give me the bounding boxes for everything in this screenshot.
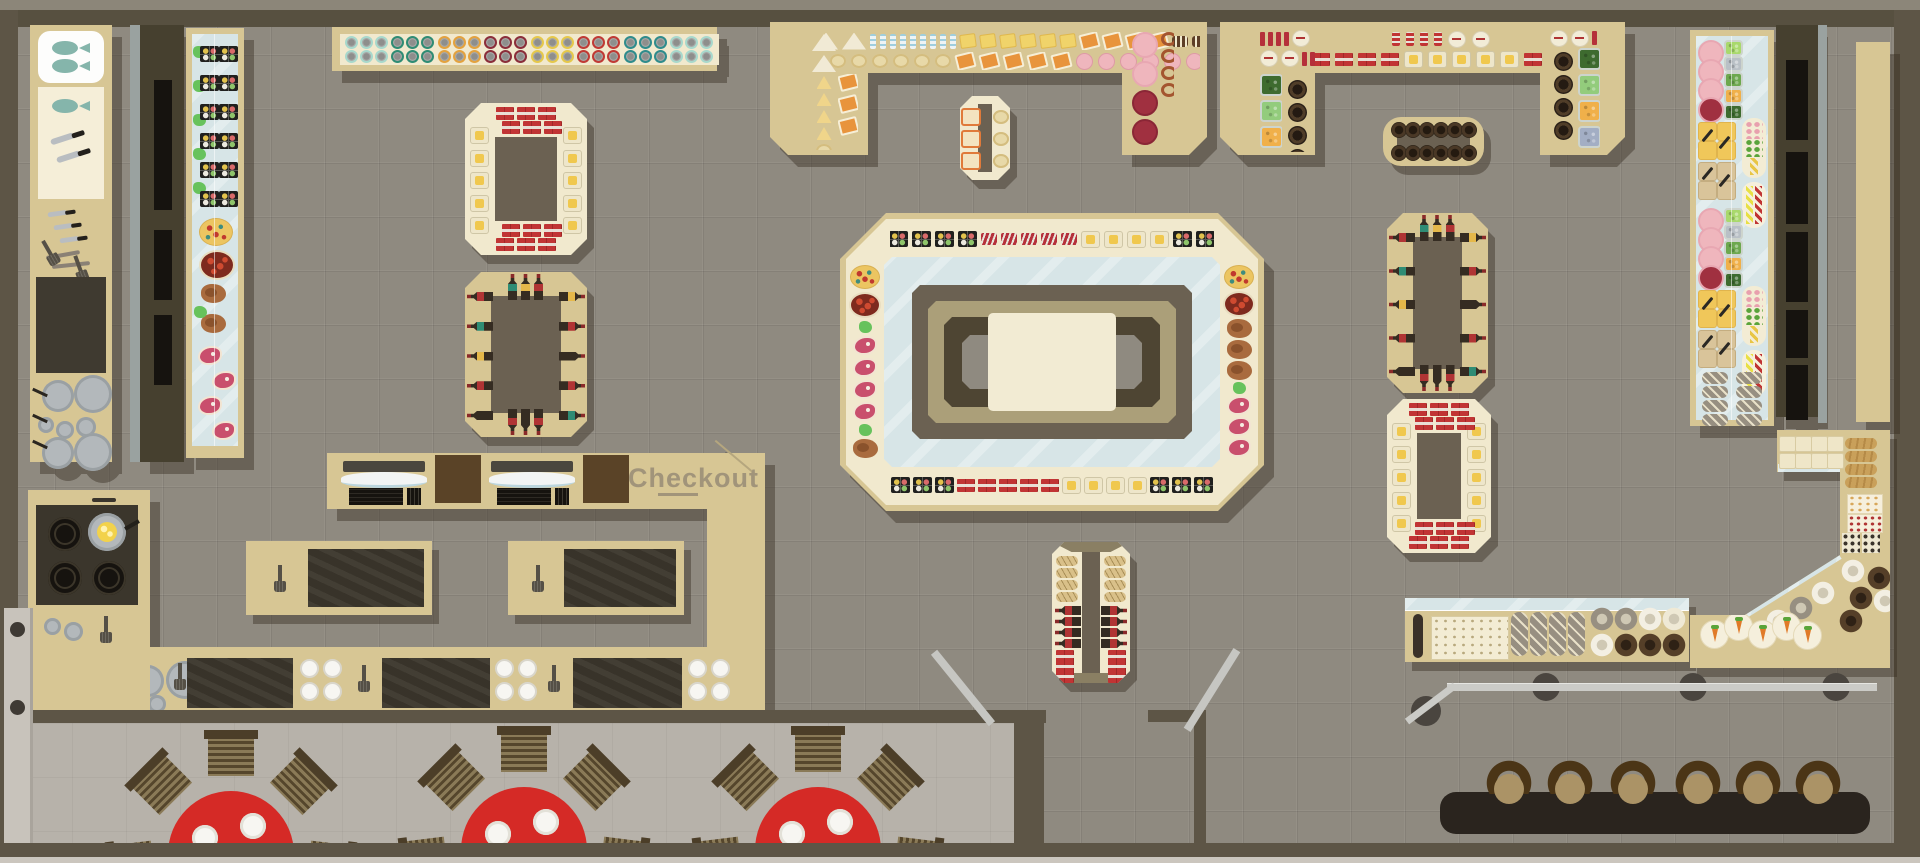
bagging-area — [583, 455, 629, 503]
dessert-glass — [1690, 607, 1745, 615]
tin-group — [345, 36, 389, 63]
tin — [592, 36, 605, 49]
butter-dairy-island-right[interactable] — [1387, 399, 1491, 553]
display-glass — [1696, 36, 1768, 420]
tin — [700, 36, 713, 49]
bowl-brown — [1288, 103, 1307, 122]
item-strip — [1320, 30, 1530, 48]
butter — [1106, 477, 1125, 494]
orange-slab — [1101, 32, 1123, 50]
canpack — [517, 107, 535, 120]
bottle — [1055, 617, 1081, 626]
register-card-slot — [555, 488, 569, 505]
bottle — [559, 381, 585, 390]
bowl-brown — [1288, 126, 1307, 145]
fish-prep-station[interactable] — [30, 25, 112, 462]
wall-bench — [4, 608, 33, 845]
ham-topping — [1745, 289, 1763, 307]
dining-chair[interactable] — [426, 752, 485, 811]
queue-railing — [1447, 683, 1877, 691]
bread-block — [1698, 181, 1717, 200]
leek — [910, 34, 916, 49]
donut — [1661, 606, 1687, 632]
butter — [1392, 423, 1411, 440]
dining-chair[interactable] — [720, 752, 779, 811]
canpack — [1335, 53, 1353, 66]
tin — [654, 50, 667, 63]
sushi — [1194, 477, 1213, 493]
tin — [685, 36, 698, 49]
chips — [817, 110, 832, 123]
tin — [561, 36, 574, 49]
butter — [1150, 231, 1169, 248]
cheese-wedge — [812, 55, 836, 72]
loafH — [1736, 372, 1762, 384]
item-strip — [1550, 28, 1600, 48]
greens — [1233, 382, 1246, 394]
canpack — [1041, 479, 1059, 492]
glass-seam — [1731, 36, 1732, 420]
bread — [1104, 592, 1126, 602]
grill-island-left[interactable] — [246, 541, 432, 615]
butter — [1392, 446, 1411, 463]
tin — [639, 50, 652, 63]
dessert-counter[interactable] — [1690, 430, 1890, 668]
glass-seam — [214, 34, 215, 446]
striped-can — [1434, 32, 1442, 46]
canpack — [1451, 536, 1469, 549]
bread-wine-island[interactable] — [1052, 542, 1130, 683]
frying-pan — [64, 622, 83, 641]
stool-seat[interactable] — [1618, 774, 1648, 804]
dark-round — [1132, 90, 1158, 116]
bottleV — [521, 274, 530, 300]
donut — [1838, 608, 1864, 634]
pastry-sq — [1779, 436, 1796, 452]
cheese-slice — [999, 33, 1017, 49]
loaf — [1530, 612, 1547, 656]
frying-pan — [44, 618, 61, 635]
tin — [514, 50, 527, 63]
sushi — [912, 231, 931, 247]
bottleV — [1420, 215, 1429, 241]
bottle — [467, 381, 493, 390]
fish-cutting-panel — [38, 87, 104, 199]
entrance-gate-right[interactable] — [1184, 648, 1241, 732]
canpack — [1056, 670, 1074, 683]
curly — [1161, 83, 1174, 97]
canpack — [502, 224, 520, 237]
sushi — [200, 162, 219, 178]
bottle — [467, 292, 493, 301]
tin — [592, 50, 605, 63]
tomato — [1223, 291, 1255, 317]
item-strip — [1578, 48, 1600, 152]
mozzarella — [1550, 30, 1568, 47]
chicken — [1227, 361, 1252, 380]
tin — [421, 50, 434, 63]
wine-island-left[interactable] — [465, 272, 587, 437]
croissant — [1845, 477, 1877, 488]
curly — [1161, 32, 1174, 46]
bottleV — [1420, 365, 1429, 391]
dining-table-group — [394, 720, 654, 863]
wine-island-right[interactable] — [1387, 213, 1488, 393]
butter — [1467, 469, 1486, 486]
register-card-slot — [407, 488, 421, 505]
tin — [360, 50, 373, 63]
bottleV — [534, 274, 543, 300]
plate — [495, 659, 514, 678]
sandwich-display-case[interactable] — [1690, 30, 1774, 426]
dining-chair[interactable] — [133, 756, 192, 815]
canpack — [523, 121, 541, 134]
bread — [1056, 556, 1078, 566]
gondola-center — [1417, 433, 1461, 519]
cheese-slice — [979, 33, 997, 49]
plate — [518, 682, 537, 701]
loafH — [1702, 414, 1728, 426]
grill-island-right[interactable] — [508, 541, 684, 615]
leek — [900, 34, 906, 49]
mustard-squiggle — [1750, 158, 1758, 175]
loafH — [1736, 414, 1762, 426]
left-deli-display-case[interactable] — [186, 28, 244, 458]
mozzarella — [1448, 31, 1466, 48]
frying-pan-egg — [88, 513, 126, 551]
bottleV — [508, 409, 517, 435]
pastry-sq — [1811, 453, 1828, 469]
loaf — [1549, 612, 1566, 656]
bottle — [1389, 300, 1415, 309]
spatula-icon — [548, 665, 560, 693]
tin — [421, 36, 434, 49]
curly — [1161, 66, 1174, 80]
plate — [495, 682, 514, 701]
canpack — [999, 479, 1017, 492]
cutting-board — [36, 277, 106, 373]
bottle — [467, 352, 493, 361]
fish-icon — [52, 99, 90, 113]
butter — [1500, 51, 1519, 68]
sushi — [219, 104, 238, 120]
dark-round — [1132, 119, 1158, 145]
steak — [853, 380, 877, 399]
bottleV — [1433, 365, 1442, 391]
appliance-slot — [1786, 365, 1808, 420]
butter — [470, 172, 489, 189]
bowl — [1578, 48, 1600, 70]
sushi — [935, 477, 954, 493]
bakery-counter[interactable] — [1405, 598, 1689, 662]
chip-pile — [993, 154, 1009, 168]
leek — [930, 34, 936, 49]
plate — [711, 659, 730, 678]
tin — [468, 36, 481, 49]
fish-sign — [38, 31, 104, 83]
knife-icon — [50, 128, 87, 147]
dining-chair[interactable] — [501, 734, 547, 772]
griddle — [308, 549, 424, 607]
cupcake — [1793, 621, 1822, 650]
knife-icon — [47, 208, 76, 218]
knife-icon — [56, 146, 93, 165]
outside-strip — [0, 857, 1920, 863]
bench-knob — [10, 622, 25, 637]
gondola-base — [1387, 399, 1491, 553]
appliance-slot — [154, 315, 172, 385]
stool-seat[interactable] — [1555, 774, 1585, 804]
rolling-pin — [1413, 614, 1423, 658]
gondola-center — [491, 296, 561, 413]
item-strip — [1312, 50, 1542, 68]
sushi — [1196, 231, 1214, 247]
jar-oval-counter[interactable] — [1383, 117, 1484, 166]
sandwich-tray — [1742, 286, 1766, 346]
ham-round — [1132, 61, 1158, 87]
end-cap — [1052, 542, 1130, 552]
bottle — [467, 411, 493, 420]
canpack — [1451, 403, 1469, 416]
plate — [300, 659, 319, 678]
butter — [470, 127, 489, 144]
loafH — [1702, 386, 1728, 398]
donut — [1589, 606, 1615, 632]
appliance-slot — [1786, 310, 1808, 358]
cheese-wedge — [812, 34, 836, 51]
right-service-counter[interactable] — [1776, 25, 1818, 417]
sushi — [958, 231, 977, 247]
item-strip — [890, 467, 1214, 503]
leek — [920, 34, 926, 49]
butter — [470, 150, 489, 167]
greens — [193, 148, 206, 160]
knife-icon — [53, 221, 82, 231]
bowl — [1724, 272, 1743, 288]
canpack — [538, 238, 556, 251]
steak — [1227, 417, 1251, 436]
curly — [1161, 49, 1174, 63]
candy-tray — [1862, 533, 1880, 553]
spatula-icon — [274, 565, 286, 593]
dessert-glass — [1832, 476, 1840, 554]
item-strip — [1222, 265, 1256, 459]
butter — [1081, 231, 1100, 248]
stool-seat[interactable] — [1494, 774, 1524, 804]
tin-shelf — [340, 34, 719, 65]
loaf — [1568, 612, 1585, 656]
jar — [1461, 122, 1477, 138]
spatula-icon — [532, 565, 544, 593]
dining-chair[interactable] — [795, 734, 841, 772]
orange-slab — [1050, 52, 1072, 70]
dining-chair[interactable] — [270, 756, 329, 815]
checkout-sign-underline — [658, 493, 698, 496]
central-deli-octagon[interactable] — [840, 213, 1264, 511]
greens — [194, 306, 207, 318]
butter-dairy-island-left[interactable] — [465, 103, 587, 255]
chip-pack — [961, 108, 981, 126]
checkout-sign: Checkout — [628, 463, 759, 494]
orange-slab — [954, 52, 976, 70]
bottle — [1055, 628, 1081, 637]
bottleV — [521, 409, 530, 435]
tin — [700, 50, 713, 63]
chip-pile — [914, 54, 930, 68]
broccoli-topping — [1745, 139, 1763, 157]
tin-group — [531, 36, 575, 63]
canpack — [1457, 522, 1475, 535]
dough-sheet — [1431, 616, 1509, 660]
right-wall-counter[interactable] — [1856, 42, 1890, 422]
orange-slab — [1026, 52, 1048, 70]
canpack — [1436, 417, 1454, 430]
mozzarella — [1571, 30, 1589, 47]
meatpack — [981, 233, 997, 245]
tin — [391, 50, 404, 63]
mustard-squiggle — [1750, 326, 1758, 343]
canpack — [517, 238, 535, 251]
left-service-counter[interactable] — [140, 25, 184, 462]
dessert-base — [1690, 430, 1890, 668]
bottle — [559, 322, 585, 331]
bottleV — [1433, 215, 1442, 241]
orange-slab — [1078, 32, 1100, 50]
striped-can — [1406, 32, 1414, 46]
plate — [688, 659, 707, 678]
steak — [198, 396, 222, 415]
butter — [1392, 515, 1411, 532]
dining-chair[interactable] — [857, 752, 916, 811]
bottle — [559, 352, 585, 361]
item-strip — [1132, 32, 1174, 150]
mozzarella — [1472, 31, 1490, 48]
tin — [670, 36, 683, 49]
bread — [1104, 556, 1126, 566]
wall-top-outer — [0, 0, 1920, 10]
red-stick — [1302, 52, 1307, 66]
display-glass — [192, 34, 238, 446]
center-table — [988, 313, 1116, 411]
register-keyboard — [349, 488, 403, 505]
cooktop — [36, 505, 138, 605]
canpack — [1457, 417, 1475, 430]
canpack — [502, 121, 520, 134]
sushi — [219, 133, 238, 149]
canned-fish-counter[interactable] — [332, 27, 717, 71]
tin — [639, 36, 652, 49]
frying-pan — [74, 375, 112, 413]
fish-icon — [52, 59, 90, 73]
pan-handle — [124, 519, 140, 530]
spatula-icon — [174, 663, 186, 691]
tin — [577, 36, 590, 49]
canpack — [1436, 522, 1454, 535]
stove-station[interactable] — [28, 490, 150, 717]
tin — [345, 50, 358, 63]
item-strip — [812, 34, 836, 150]
canpack — [1409, 536, 1427, 549]
tin — [607, 50, 620, 63]
cheese-wedge — [842, 33, 866, 50]
tin — [375, 50, 388, 63]
wall-right — [1894, 10, 1920, 857]
plate — [827, 809, 853, 835]
chip-pile — [851, 54, 867, 68]
bowl — [1724, 88, 1743, 104]
bowl — [1724, 240, 1743, 256]
steak — [212, 371, 236, 390]
pastry-sq — [1795, 453, 1812, 469]
bowl-brown — [1288, 80, 1307, 99]
bottle — [559, 292, 585, 301]
red-stick — [1260, 32, 1265, 46]
bagging-area — [435, 455, 481, 503]
donut — [1866, 565, 1892, 591]
bread — [1056, 592, 1078, 602]
brown-log — [1172, 36, 1188, 47]
dining-chair[interactable] — [563, 752, 622, 811]
stool-seat[interactable] — [1683, 774, 1713, 804]
loafH — [1702, 372, 1728, 384]
canpack — [544, 121, 562, 134]
plate — [240, 813, 266, 839]
tin — [345, 36, 358, 49]
item-strip — [848, 265, 882, 459]
gondola-base — [1387, 213, 1488, 393]
dining-chair[interactable] — [208, 738, 254, 776]
bottleV — [534, 409, 543, 435]
bread — [1056, 580, 1078, 590]
plate — [300, 682, 319, 701]
knife-icon — [59, 234, 88, 244]
butter — [470, 217, 489, 234]
pastry-sq — [1779, 453, 1796, 469]
item-strip — [1260, 30, 1316, 70]
tin — [546, 36, 559, 49]
stool-seat[interactable] — [1803, 774, 1833, 804]
bottle — [1055, 639, 1081, 648]
bench-knob — [10, 700, 25, 715]
bowl — [1260, 100, 1282, 122]
tin-group — [484, 36, 528, 63]
bottle — [1055, 606, 1081, 615]
leek — [880, 34, 886, 49]
loafH — [1702, 400, 1728, 412]
sushi — [200, 191, 219, 207]
bread — [1104, 580, 1126, 590]
register-scanner[interactable] — [339, 461, 431, 505]
stool-seat[interactable] — [1743, 774, 1773, 804]
canpack — [1358, 53, 1376, 66]
bowl — [1724, 104, 1743, 120]
bottleV — [1446, 215, 1455, 241]
meatpack — [1021, 233, 1037, 245]
butter — [1392, 492, 1411, 509]
bottle — [559, 411, 585, 420]
loaf — [1511, 612, 1528, 656]
tin — [484, 36, 497, 49]
pizza — [1224, 265, 1254, 289]
register-scanner[interactable] — [487, 461, 579, 505]
snack-island[interactable] — [960, 96, 1010, 180]
leek — [870, 34, 876, 49]
bottle — [1460, 367, 1486, 376]
bowl-brown — [1554, 121, 1573, 140]
tin — [531, 50, 544, 63]
plate — [323, 659, 342, 678]
sushi — [200, 133, 219, 149]
